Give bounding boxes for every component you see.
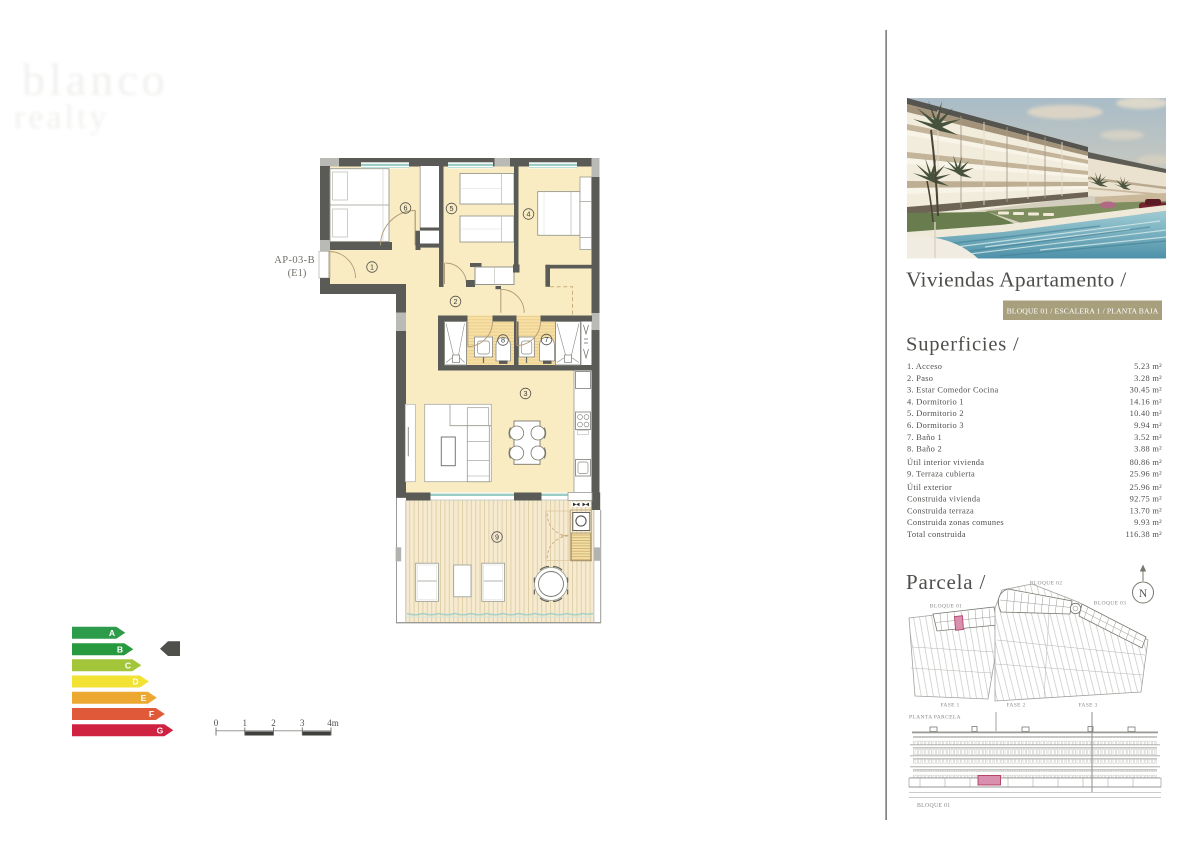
svg-text:9.93 m²: 9.93 m² [1134,518,1162,527]
svg-text:FASE 3: FASE 3 [1078,703,1097,709]
svg-text:Construida vivienda: Construida vivienda [907,495,980,504]
svg-text:F: F [149,709,154,719]
svg-text:(E1): (E1) [288,268,307,279]
svg-text:5: 5 [450,204,454,213]
svg-text:4: 4 [527,210,531,219]
svg-text:Útil interior vivienda: Útil interior vivienda [907,457,984,467]
svg-text:8. Baño 2: 8. Baño 2 [907,445,942,454]
svg-text:6. Dormitorio 3: 6. Dormitorio 3 [907,421,964,430]
svg-text:10.40 m²: 10.40 m² [1130,409,1163,418]
svg-text:BLOQUE 02: BLOQUE 02 [1030,581,1062,587]
svg-text:4. Dormitorio 1: 4. Dormitorio 1 [907,397,964,406]
svg-text:9: 9 [495,533,499,542]
svg-text:E: E [141,693,147,703]
svg-text:92.75 m²: 92.75 m² [1130,495,1163,504]
svg-text:FASE 2: FASE 2 [1006,703,1025,709]
svg-text:Viviendas Apartamento /: Viviendas Apartamento / [906,268,1127,292]
svg-text:PLANTA PARCELA: PLANTA PARCELA [909,715,961,721]
svg-text:3.28 m²: 3.28 m² [1134,374,1162,383]
svg-text:14.16 m²: 14.16 m² [1130,397,1163,406]
svg-text:2: 2 [271,718,276,728]
svg-text:5. Dormitorio 2: 5. Dormitorio 2 [907,409,964,418]
svg-text:7: 7 [545,335,549,344]
svg-text:2: 2 [454,297,458,306]
svg-text:Parcela /: Parcela / [906,570,986,594]
svg-text:3: 3 [300,718,305,728]
svg-text:9.94 m²: 9.94 m² [1134,421,1162,430]
svg-text:BLOQUE 01: BLOQUE 01 [917,803,950,809]
svg-text:1: 1 [370,263,374,272]
svg-text:C: C [125,660,131,670]
svg-text:116.38 m²: 116.38 m² [1125,530,1162,539]
svg-text:2. Paso: 2. Paso [907,374,933,383]
svg-text:13.70 m²: 13.70 m² [1130,506,1163,515]
svg-text:Construida zonas comunes: Construida zonas comunes [907,518,1004,527]
svg-text:B: B [117,644,123,654]
svg-text:25.96 m²: 25.96 m² [1130,483,1163,492]
svg-text:Construida terraza: Construida terraza [907,506,974,515]
svg-text:Total construida: Total construida [907,530,966,539]
svg-text:30.45 m²: 30.45 m² [1130,386,1163,395]
svg-text:4m: 4m [327,718,339,728]
svg-text:5.23 m²: 5.23 m² [1134,362,1162,371]
svg-text:3.88 m²: 3.88 m² [1134,445,1162,454]
svg-text:blanco: blanco [22,54,169,105]
svg-text:FASE 1: FASE 1 [940,703,959,709]
svg-text:6: 6 [404,204,408,213]
svg-text:3: 3 [524,389,528,398]
svg-text:9. Terraza cubierta: 9. Terraza cubierta [907,470,975,479]
svg-text:BLOQUE 01 / ESCALERA 1 / PLANT: BLOQUE 01 / ESCALERA 1 / PLANTA BAJA [1007,307,1159,316]
svg-text:A: A [109,628,115,638]
svg-text:D: D [132,677,138,687]
svg-text:3.52 m²: 3.52 m² [1134,433,1162,442]
svg-text:AP-03-B: AP-03-B [274,255,315,266]
svg-text:0: 0 [214,718,219,728]
svg-text:Superficies /: Superficies / [906,334,1019,356]
svg-text:realty: realty [14,99,109,136]
svg-text:80.86 m²: 80.86 m² [1130,458,1163,467]
svg-text:BLOQUE 01: BLOQUE 01 [930,604,962,610]
svg-text:3. Estar Comedor Cocina: 3. Estar Comedor Cocina [907,386,999,395]
svg-text:G: G [157,725,164,735]
svg-text:1. Acceso: 1. Acceso [907,362,942,371]
svg-text:1: 1 [243,718,248,728]
svg-text:25.96 m²: 25.96 m² [1130,470,1163,479]
svg-text:BLOQUE 03: BLOQUE 03 [1094,601,1126,607]
svg-text:8: 8 [501,336,505,345]
svg-text:7. Baño 1: 7. Baño 1 [907,433,942,442]
svg-text:N: N [1139,588,1148,600]
svg-text:Útil exterior: Útil exterior [907,482,952,492]
